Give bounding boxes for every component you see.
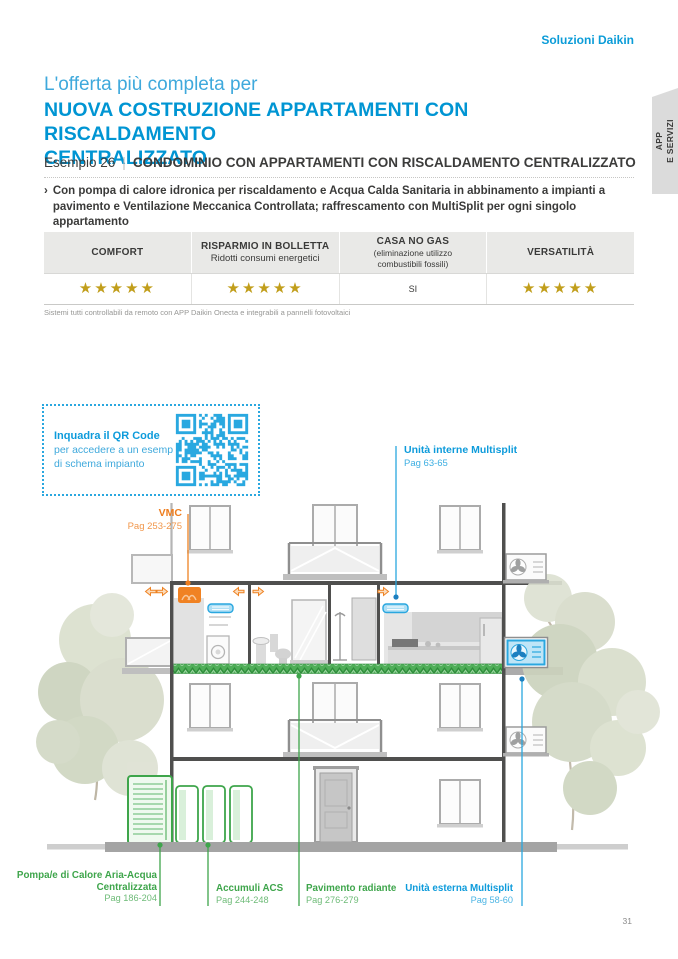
dotted-divider: [44, 177, 634, 178]
vmc-unit: [178, 587, 201, 603]
entrance-door: [313, 766, 359, 842]
example-label: Esempio 26: [44, 155, 115, 170]
left-tree: [36, 593, 164, 800]
outdoor-unit-top: [503, 554, 549, 584]
example-title: CONDOMINIO CON APPARTAMENTI CON RISCALDA…: [133, 155, 636, 170]
comfort-rating-stars: ★★★★★: [79, 277, 156, 301]
example-heading: Esempio 26|CONDOMINIO CON APPARTAMENTI C…: [44, 155, 636, 170]
brand-header: Soluzioni Daikin: [541, 33, 634, 47]
col-comfort-header: COMFORT: [44, 232, 191, 273]
qr-text: Inquadra il QR Code per accedere a un es…: [54, 429, 181, 471]
left-mid-balcony: [126, 638, 172, 666]
intro-bullet: › Con pompa di calore idronica per risca…: [44, 184, 640, 231]
features-table-values: ★★★★★ ★★★★★ SI ★★★★★: [44, 274, 634, 305]
outdoor-unit-mid: [503, 727, 549, 757]
qr-code-box: Inquadra il QR Code per accedere a un es…: [42, 404, 260, 496]
label-acs-tanks: Accumuli ACS Pag 244-248: [216, 883, 283, 906]
page-number: 31: [623, 916, 632, 926]
catalog-page: Soluzioni Daikin APP E SERVIZI L'offerta…: [0, 0, 678, 959]
indoor-unit-2: [383, 604, 408, 613]
features-table-header: COMFORT RISPARMIO IN BOLLETTA Ridotti co…: [44, 232, 634, 274]
features-table: COMFORT RISPARMIO IN BOLLETTA Ridotti co…: [44, 232, 634, 305]
col-risparmio-header: RISPARMIO IN BOLLETTA Ridotti consumi en…: [191, 232, 339, 273]
label-vmc: VMC Pag 253-275: [80, 507, 182, 533]
col-versatilita-header: VERSATILITÀ: [486, 232, 634, 273]
label-outdoor-multisplit: Unità esterna Multisplit Pag 58-60: [373, 883, 513, 906]
indoor-unit-1: [208, 604, 233, 613]
col-casa-no-gas-value: SI: [339, 274, 487, 304]
bullet-text: Con pompa di calore idronica per riscald…: [53, 184, 640, 231]
ground: [105, 842, 557, 852]
central-heat-pump: [128, 776, 172, 844]
risparmio-rating-stars: ★★★★★: [227, 277, 304, 301]
versatilita-rating-stars: ★★★★★: [522, 277, 599, 301]
qr-code: [173, 411, 251, 489]
qr-title: Inquadra il QR Code: [54, 429, 181, 443]
radiant-floor-band: [172, 664, 505, 674]
bullet-marker: ›: [44, 184, 48, 231]
label-heat-pump: Pompa/e di Calore Aria-Acqua Centralizza…: [12, 870, 157, 905]
col-casa-no-gas-header: CASA NO GAS (eliminazione utilizzo combu…: [339, 232, 487, 273]
kitchen: [384, 612, 502, 664]
washing-machine: [207, 636, 229, 664]
side-tab-app-e-servizi: APP E SERVIZI: [652, 88, 678, 194]
label-indoor-multisplit: Unità interne Multisplit Pag 63-65: [404, 444, 517, 470]
casa-no-gas-value: SI: [409, 284, 418, 294]
side-tab-label: APP E SERVIZI: [654, 119, 676, 163]
col-risparmio-value: ★★★★★: [191, 274, 339, 304]
col-comfort-value: ★★★★★: [44, 274, 191, 304]
example-separator: |: [115, 155, 133, 170]
right-tree: [522, 574, 660, 830]
col-versatilita-value: ★★★★★: [486, 274, 634, 304]
table-footnote: Sistemi tutti controllabili da remoto co…: [44, 308, 350, 317]
outdoor-unit-highlighted: [505, 638, 548, 668]
page-kicker: L'offerta più completa per: [44, 74, 257, 96]
acs-storage-tanks: [176, 786, 252, 843]
